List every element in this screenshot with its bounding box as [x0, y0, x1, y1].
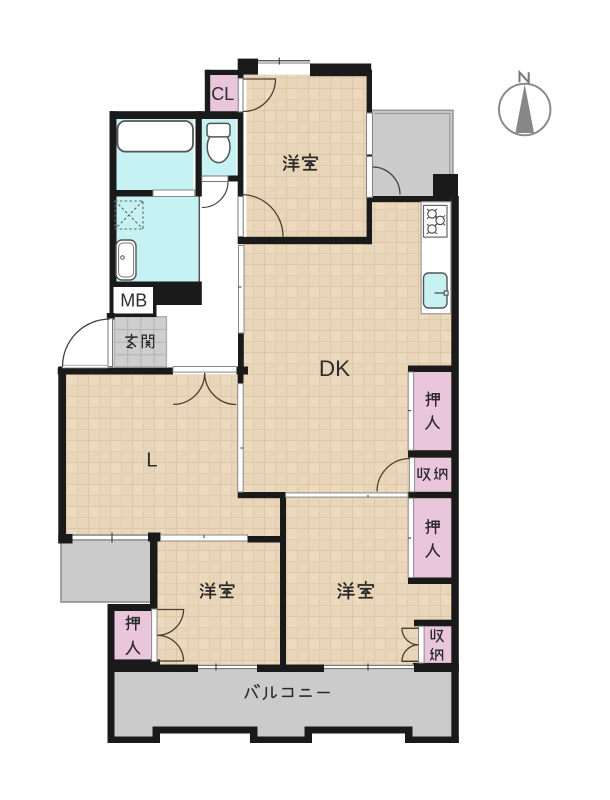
svg-text:MB: MB [120, 291, 147, 311]
svg-text:L: L [146, 449, 157, 472]
svg-text:CL: CL [211, 84, 234, 104]
svg-text:DK: DK [319, 356, 350, 381]
